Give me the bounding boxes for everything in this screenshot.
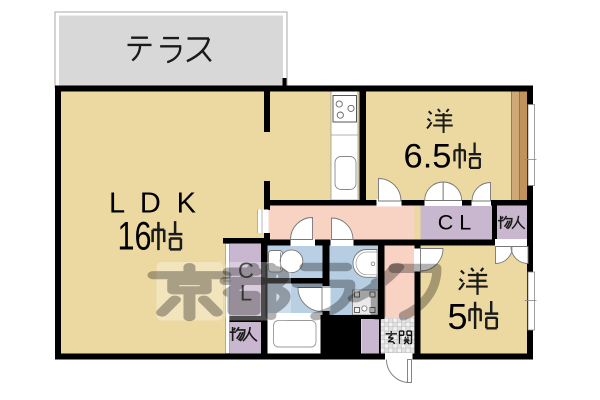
- svg-text:5: 5: [448, 296, 468, 337]
- svg-text:6.5: 6.5: [404, 138, 452, 176]
- svg-text:16: 16: [118, 215, 152, 259]
- svg-text:C L: C L: [438, 211, 472, 235]
